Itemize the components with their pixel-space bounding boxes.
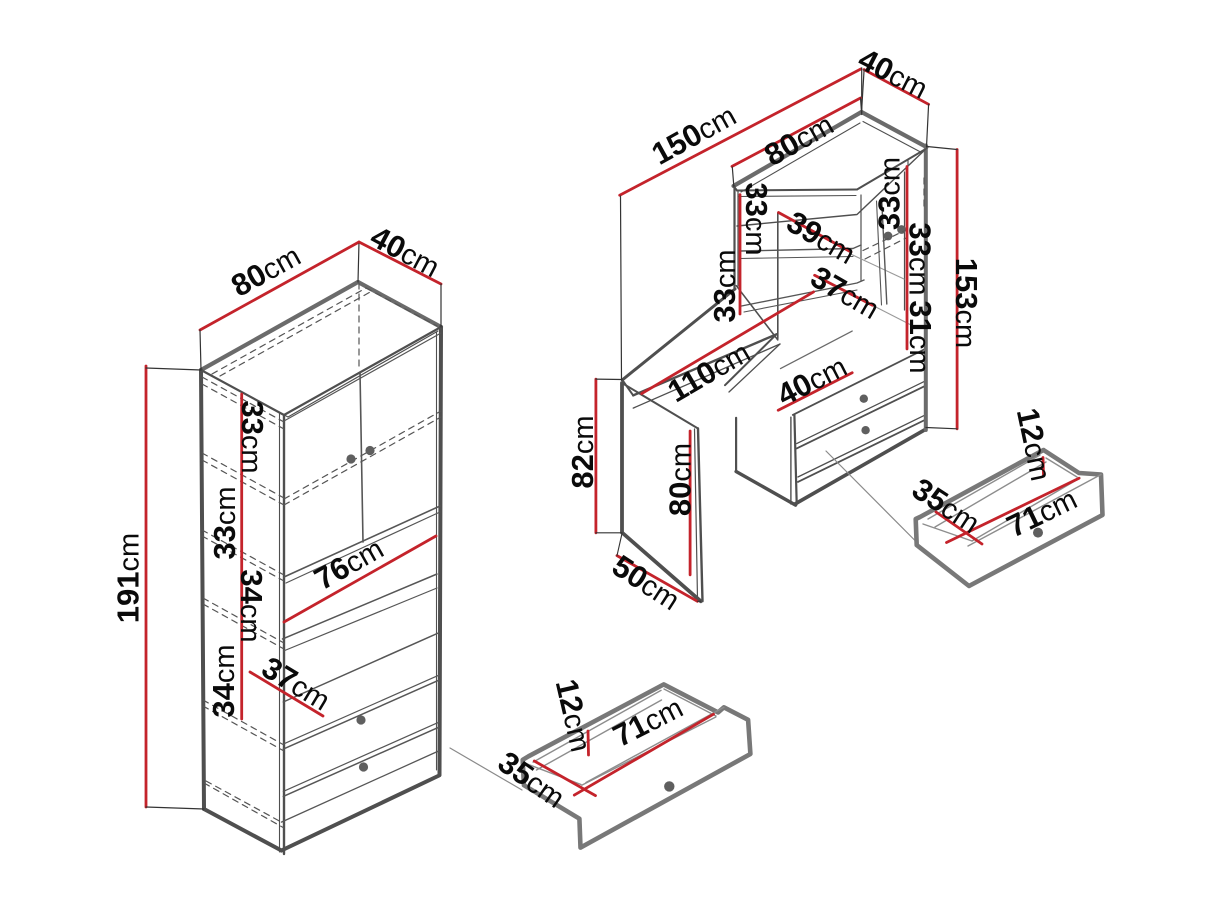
svg-text:80cm: 80cm [663, 443, 698, 516]
svg-text:33cm: 33cm [207, 486, 242, 559]
svg-text:191cm: 191cm [111, 533, 146, 623]
svg-text:82cm: 82cm [565, 415, 600, 488]
svg-text:33cm: 33cm [739, 182, 774, 255]
svg-text:33cm: 33cm [872, 157, 907, 230]
svg-text:153cm: 153cm [949, 258, 984, 348]
svg-text:34cm: 34cm [206, 644, 241, 717]
svg-text:33cm: 33cm [235, 400, 270, 473]
svg-text:34cm: 34cm [234, 569, 269, 642]
svg-text:31cm: 31cm [903, 300, 938, 373]
svg-text:33cm: 33cm [903, 222, 938, 295]
svg-text:33cm: 33cm [707, 249, 742, 322]
